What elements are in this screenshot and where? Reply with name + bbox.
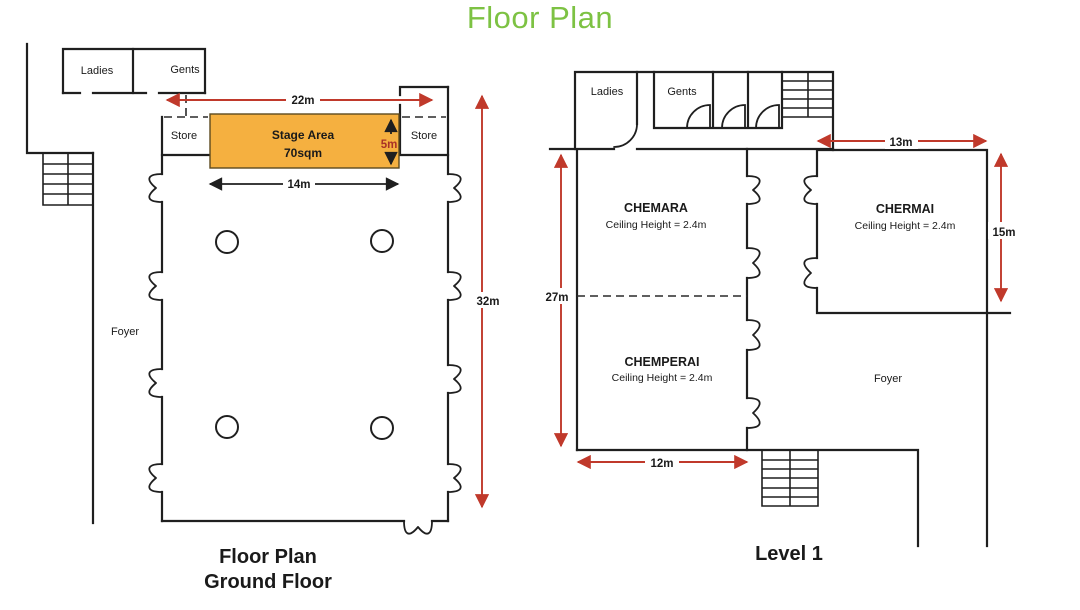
double-door-icon (149, 369, 162, 397)
dimension-32m: 32m (470, 96, 505, 507)
hall-ceiling-chemara: Ceiling Height = 2.4m (606, 219, 707, 231)
floor-plan-drawing: 22m 14m 5m 32m Ladies Gents Store Store (0, 0, 1080, 610)
staircase-level1-bottom (762, 451, 818, 506)
column-circle (216, 416, 238, 438)
door-symbols-level1 (747, 176, 817, 428)
hall-label-chemara: CHEMARA (624, 201, 688, 215)
ground-floor-plan: 22m 14m 5m 32m Ladies Gents Store Store (27, 44, 505, 593)
door-arc-icon (687, 105, 710, 128)
double-door-icon (747, 320, 760, 350)
room-label-gents-l1: Gents (667, 86, 697, 98)
double-door-icon (149, 464, 162, 492)
door-arc-icon (722, 105, 745, 128)
column-circle (371, 417, 393, 439)
dim-label-12m: 12m (650, 458, 673, 470)
room-label-store-right: Store (411, 130, 437, 142)
staircase-ground (43, 153, 93, 205)
dimension-14m: 14m (210, 177, 398, 191)
stage-label: Stage Area (272, 128, 335, 142)
hall-ceiling-chermai: Ceiling Height = 2.4m (855, 220, 956, 232)
dimension-13m: 13m (818, 134, 986, 149)
room-label-foyer-l1: Foyer (874, 373, 902, 385)
double-door-icon (448, 365, 461, 393)
door-arc-icon (756, 105, 779, 128)
dim-label-14m: 14m (287, 179, 310, 191)
dim-label-5m: 5m (381, 139, 398, 151)
store-right (400, 87, 448, 155)
hall-bottom-wall-l1 (577, 450, 918, 546)
dim-label-32m: 32m (476, 296, 499, 308)
door-arc-icon (614, 124, 637, 147)
dim-label-15m: 15m (992, 227, 1015, 239)
room-label-ladies-l1: Ladies (591, 86, 624, 98)
double-door-icon (448, 464, 461, 492)
outer-wall (27, 44, 93, 153)
double-door-icon (404, 521, 432, 534)
toilet-block-ground (63, 49, 205, 116)
room-label-gents: Gents (170, 64, 200, 76)
double-door-icon (448, 272, 461, 300)
dimension-27m: 27m (542, 155, 572, 446)
dimension-22m: 22m (167, 92, 432, 107)
caption-ground-line2: Ground Floor (204, 571, 332, 593)
double-door-icon (448, 174, 461, 202)
double-door-icon (804, 176, 817, 204)
double-door-icon (149, 272, 162, 300)
store-right-walls (400, 87, 448, 155)
hall-label-chermai: CHERMAI (876, 202, 934, 216)
caption-ground-line1: Floor Plan (219, 546, 317, 568)
room-label-store-left: Store (171, 130, 197, 142)
level1-plan: 13m 15m 27m 12m Ladies Gents CHEMARA Cei… (542, 72, 1020, 565)
dimension-12m: 12m (578, 455, 747, 470)
double-door-icon (747, 176, 760, 204)
column-circle (216, 231, 238, 253)
dim-label-22m: 22m (291, 95, 314, 107)
dimension-15m: 15m (988, 154, 1020, 301)
door-symbols-ground (149, 174, 460, 534)
double-door-icon (747, 398, 760, 428)
stage-area-label: 70sqm (284, 146, 322, 160)
toilet-outer-walls (575, 72, 833, 150)
dim-label-27m: 27m (545, 292, 568, 304)
double-door-icon (747, 248, 760, 278)
hall-ceiling-chemperai: Ceiling Height = 2.4m (612, 372, 713, 384)
double-door-icon (804, 258, 817, 288)
columns-ground (216, 230, 393, 439)
double-door-icon (149, 174, 162, 202)
toilet-block-level1 (550, 72, 833, 150)
room-label-ladies: Ladies (81, 65, 114, 77)
caption-level1: Level 1 (755, 543, 823, 565)
hall-label-chemperai: CHEMPERAI (624, 355, 699, 369)
room-label-foyer-ground: Foyer (111, 326, 139, 338)
staircase-level1-top (782, 72, 833, 117)
floor-plan-page: Floor Plan (0, 0, 1080, 610)
dim-label-13m: 13m (889, 137, 912, 149)
column-circle (371, 230, 393, 252)
